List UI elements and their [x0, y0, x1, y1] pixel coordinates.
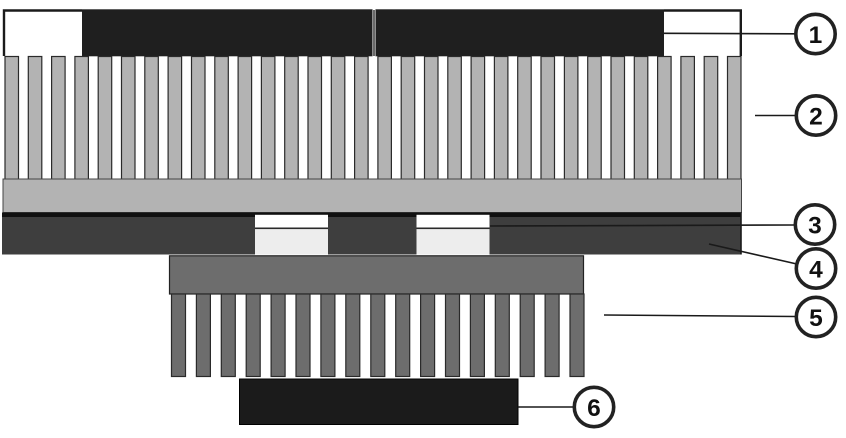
svg-text:1: 1: [809, 22, 823, 49]
svg-text:5: 5: [809, 305, 823, 332]
svg-text:2: 2: [809, 103, 823, 130]
svg-text:4: 4: [809, 256, 823, 283]
svg-text:6: 6: [587, 395, 601, 422]
svg-text:3: 3: [808, 212, 822, 239]
